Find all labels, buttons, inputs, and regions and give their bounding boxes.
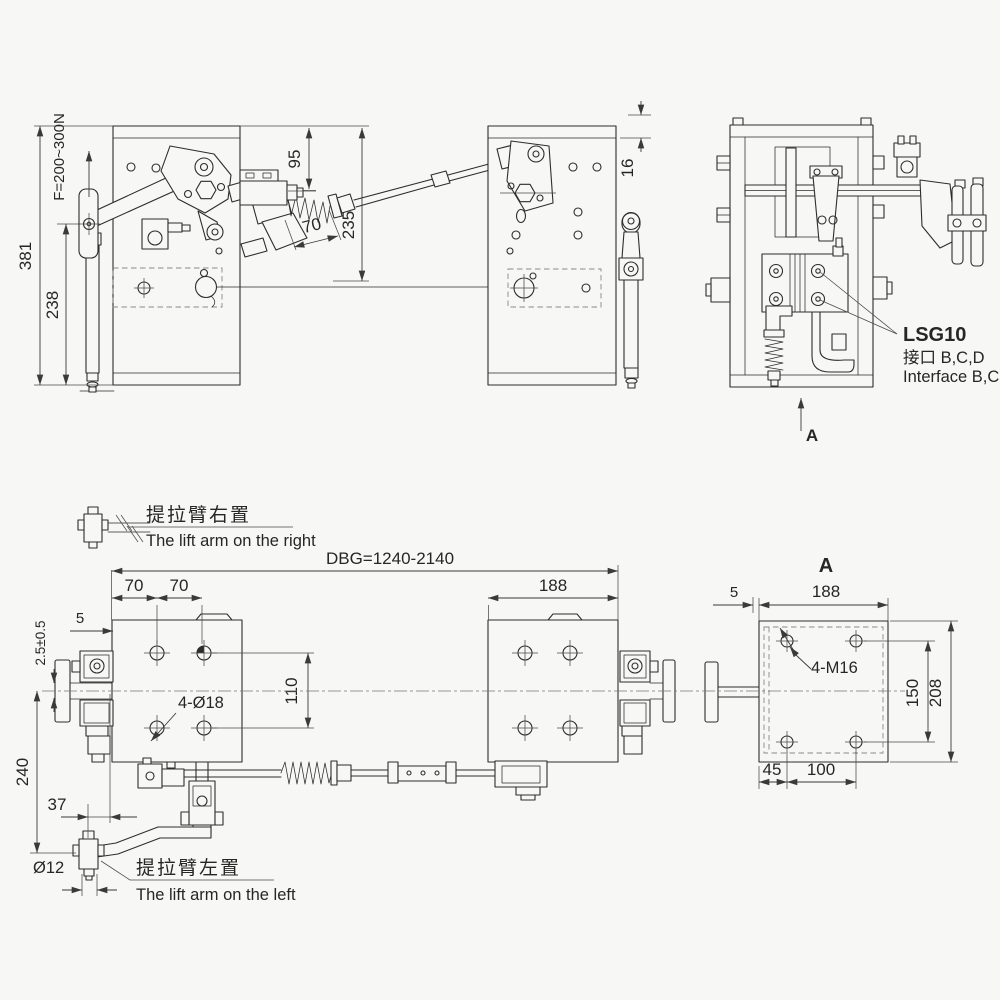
view-a-arrow: A	[801, 398, 818, 445]
lift-arm-bar	[97, 827, 211, 857]
callout-4-m16: 4-M16	[811, 659, 858, 677]
detail-view-a: A 5 188 208	[705, 555, 958, 789]
dim-100: 100	[807, 760, 835, 779]
elevator-safety-gear-drawing: 381 238 F=200~300N 95 70 235	[0, 0, 1000, 1000]
plan-spring-coil	[281, 762, 332, 784]
side-roller-assembly	[894, 136, 986, 266]
callout-model: LSG10	[903, 324, 966, 346]
callout-4-d18: 4-Ø18	[178, 694, 224, 712]
detail-title: A	[819, 555, 833, 577]
plan-lift-arm-right-sketch	[78, 507, 150, 548]
middle-view: 16	[488, 101, 651, 388]
label-arm-left-cn: 提拉臂左置	[136, 857, 241, 879]
detail-mounting-plate	[759, 621, 888, 762]
plan-right-block	[488, 614, 618, 762]
technical-drawing-page: 381 238 F=200~300N 95 70 235	[0, 0, 1000, 1000]
label-arm-right-en: The lift arm on the right	[146, 532, 316, 550]
lift-handle	[78, 189, 100, 258]
dim-188-plan: 188	[539, 576, 567, 595]
detail-rail	[705, 662, 759, 722]
dim-pin-dia: Ø12	[33, 859, 64, 877]
dim-70b: 70	[170, 576, 189, 595]
callout-interface-cn: 接口 B,C,D	[903, 348, 985, 367]
dim-240: 240	[13, 758, 32, 786]
view-arrow-label: A	[806, 426, 818, 445]
dim-381: 381	[16, 242, 35, 270]
middle-side-link	[619, 213, 643, 389]
front-actuator	[240, 170, 303, 205]
front-view: 381 238 F=200~300N 95 70 235	[16, 113, 514, 392]
dim-188-detail: 188	[812, 582, 840, 601]
dim-45: 45	[763, 760, 782, 779]
dim-208: 208	[926, 679, 945, 707]
dim-16: 16	[618, 159, 637, 178]
dim-238: 238	[43, 291, 62, 319]
dim-70-spring: 70	[300, 214, 323, 237]
middle-dimensions: 16	[618, 101, 651, 177]
dim-clearance: 2.5±0.5	[33, 621, 48, 666]
dim-70a: 70	[125, 576, 144, 595]
label-arm-right-cn: 提拉臂右置	[146, 504, 251, 526]
dim-dbg: DBG=1240-2140	[326, 549, 454, 568]
dim-235: 235	[339, 211, 358, 239]
force-label: F=200~300N	[51, 113, 68, 201]
dim-5-plan: 5	[76, 610, 84, 627]
dim-95: 95	[285, 150, 304, 169]
dim-5-detail: 5	[730, 584, 738, 601]
dim-150: 150	[903, 679, 922, 707]
plan-right-rail	[620, 651, 675, 754]
side-view: LSG10 接口 B,C,D Interface B,C,D A	[706, 118, 1000, 445]
plan-left-rail	[55, 651, 113, 762]
plan-view: 提拉臂右置 The lift arm on the right 提拉臂左置 Th…	[13, 504, 675, 904]
callout-interface-en: Interface B,C,D	[903, 368, 1000, 386]
dim-37: 37	[48, 795, 67, 814]
plan-left-block	[112, 614, 242, 762]
label-arm-left-en: The lift arm on the left	[136, 886, 296, 904]
